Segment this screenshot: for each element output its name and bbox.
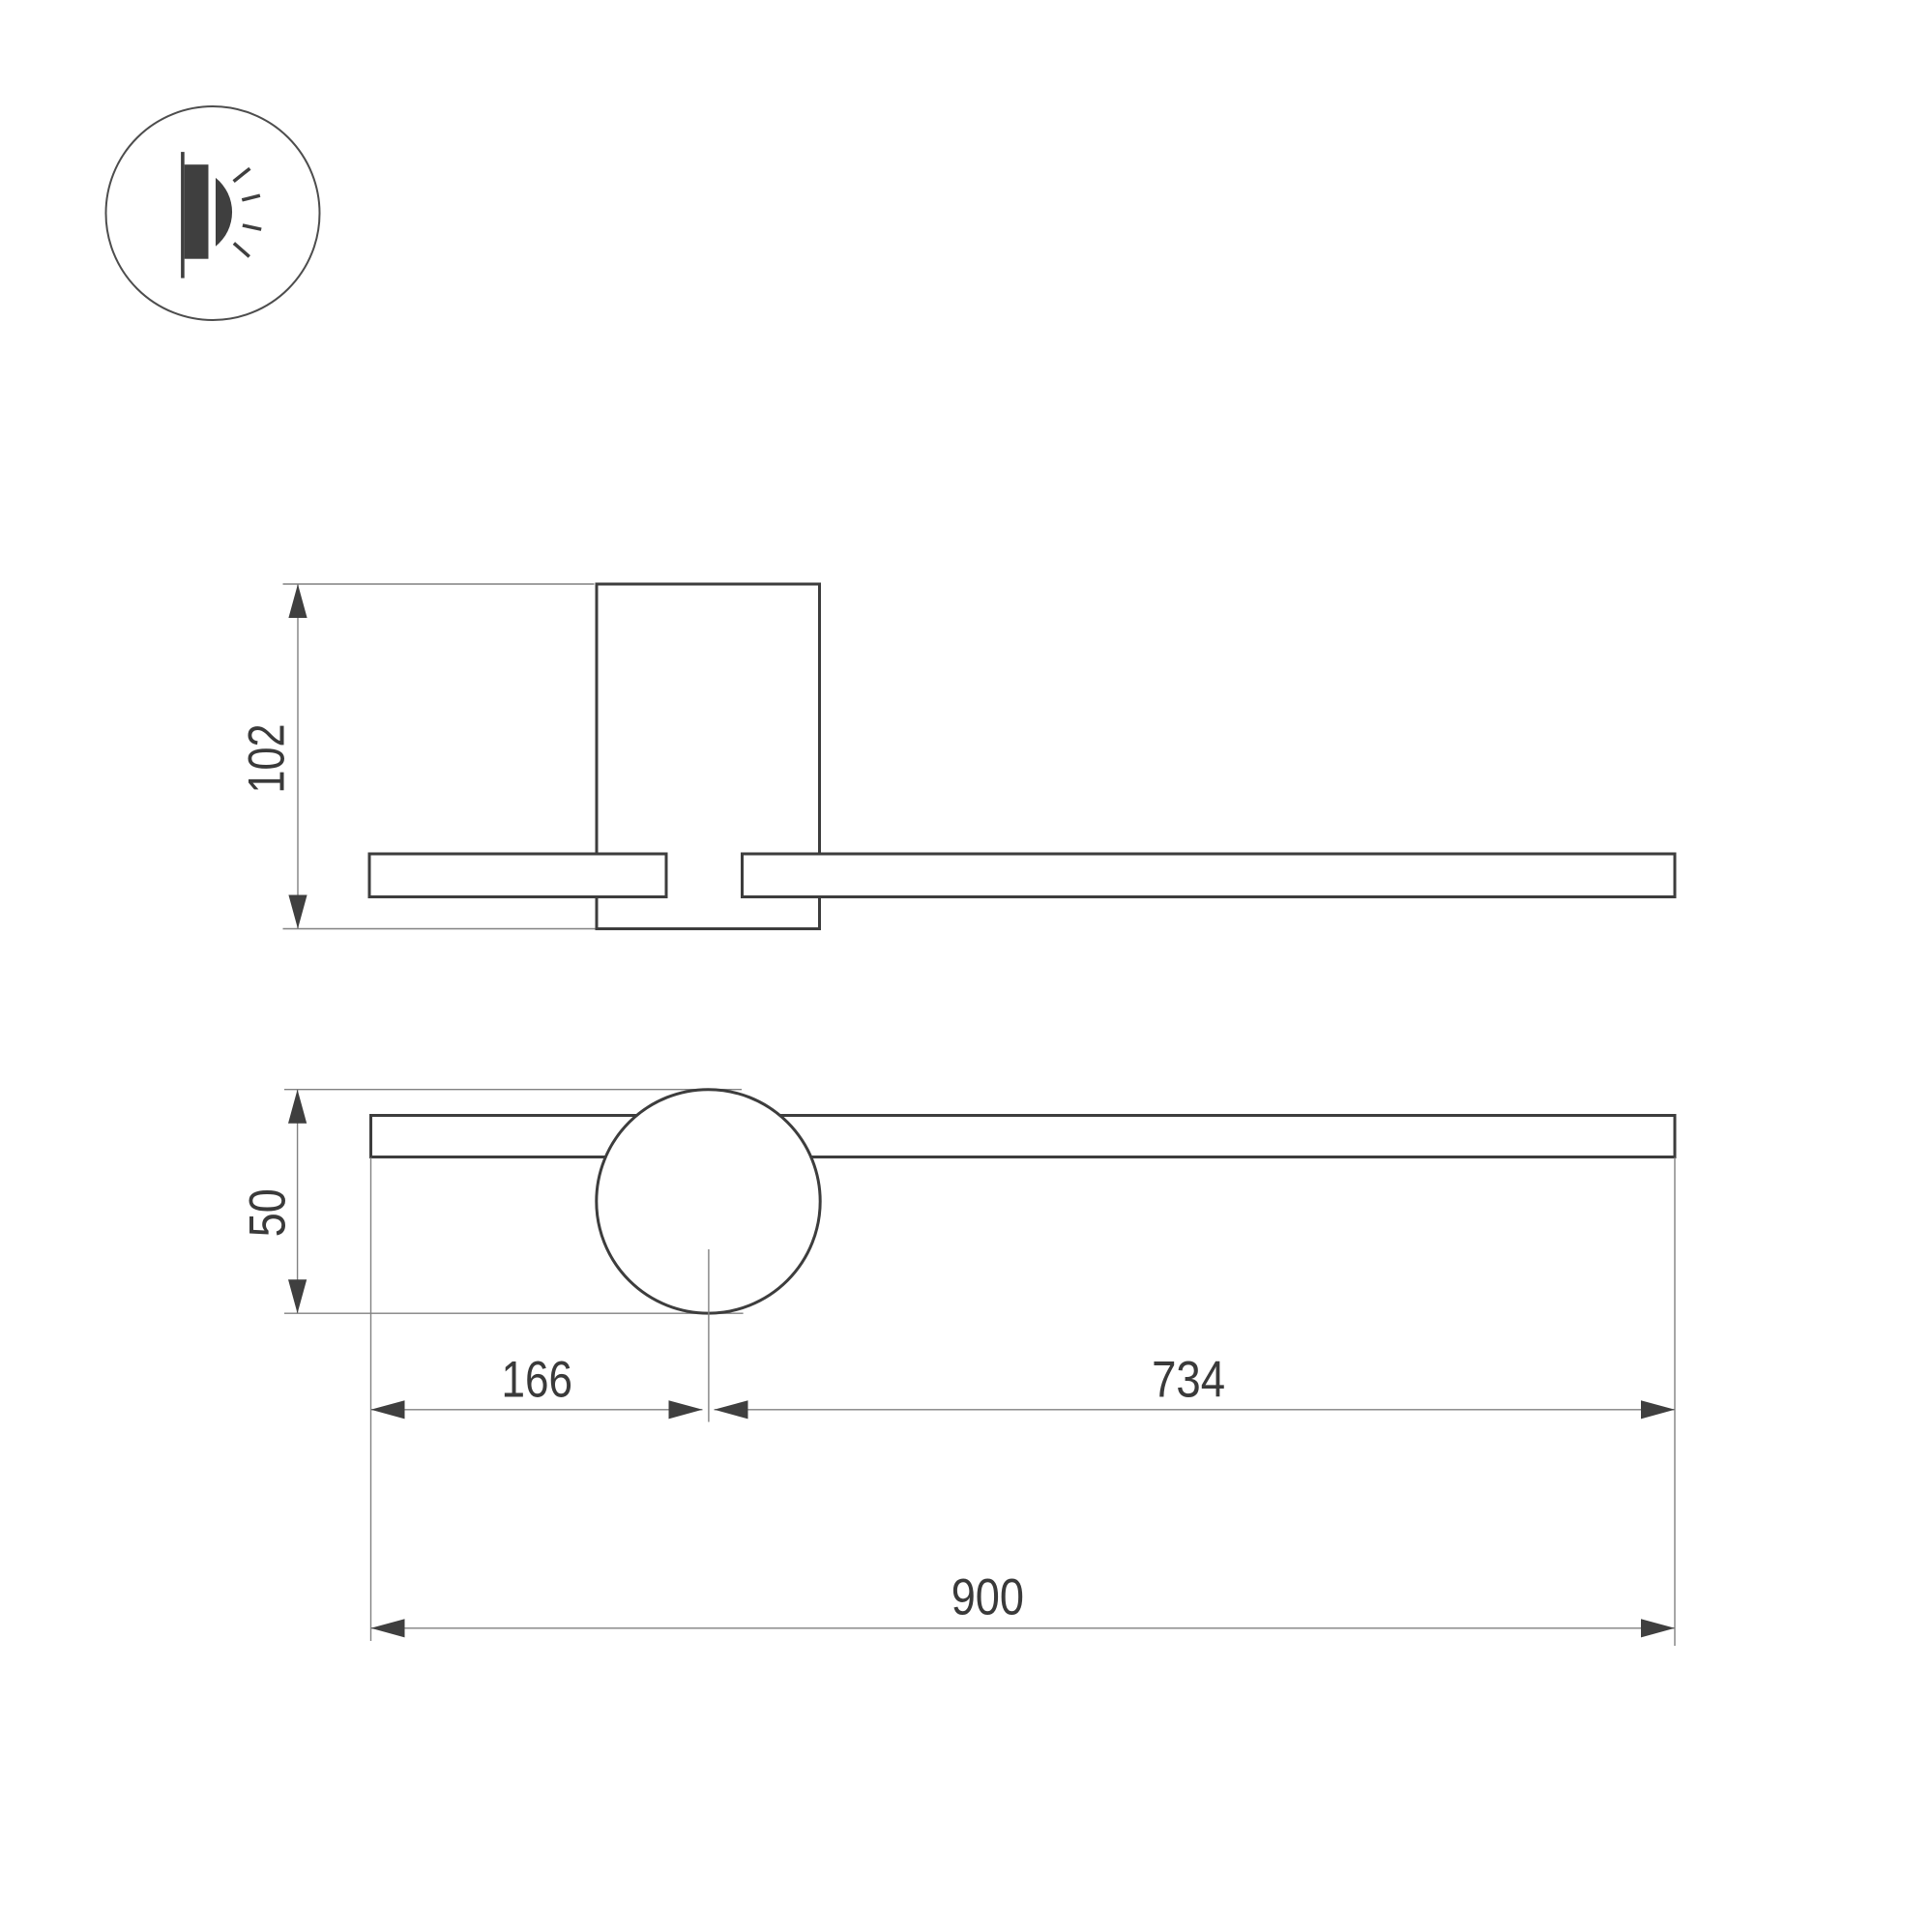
svg-text:734: 734 (1152, 1352, 1225, 1409)
svg-text:900: 900 (951, 1568, 1024, 1625)
svg-text:50: 50 (240, 1188, 297, 1237)
svg-text:166: 166 (502, 1351, 573, 1408)
svg-text:102: 102 (239, 724, 296, 794)
